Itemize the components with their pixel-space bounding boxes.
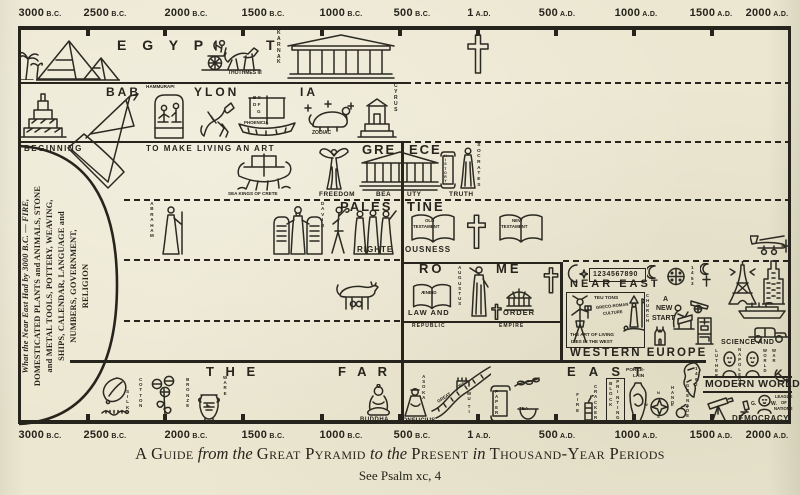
rome-cross-icon [543, 264, 559, 294]
vline-rome-right [560, 262, 563, 362]
rome-label-2: ME [496, 262, 522, 275]
far-label: F A R [338, 365, 391, 378]
new-testament-label-1: NEW [512, 219, 522, 223]
axis-tick [710, 30, 714, 36]
axis-label-1000-ad: 1000 A.D. [615, 7, 658, 19]
near-east-label: NEAR EAST [570, 279, 661, 290]
axis-label-3000-bc: 3000 B.C. [18, 429, 61, 441]
axis-label-500-bc: 500 B.C. [394, 7, 431, 19]
arc-text-line: What the Near East Had by 3000 B.C. — FI… [20, 150, 32, 422]
art-of-living-label-2: DIES IN THE WEST [571, 340, 613, 345]
order-label: ORDER [503, 309, 535, 317]
porcelain-label-2: LAIN [633, 375, 644, 380]
axis-tick [554, 414, 558, 420]
fire-label: FIRE [576, 392, 579, 413]
crescent-cross-icon [700, 263, 713, 287]
axis-tick [163, 30, 167, 36]
arc-text-line: and METAL TOOLS, POTTERY, WEAVING, [44, 150, 56, 422]
bronze-vessel-icon [196, 390, 222, 423]
silk-label: SILK [126, 389, 129, 410]
egypt-label-2: T [266, 38, 275, 52]
caption-segment: in [469, 444, 490, 463]
axis-label-2000-bc: 2000 B.C. [164, 7, 207, 19]
cotton-plant-icon [149, 375, 179, 422]
wolf-icon [334, 278, 380, 311]
steamship-icon [737, 302, 787, 320]
numerals-label: 1234567890 [593, 271, 638, 278]
new-testament-label-2: TESTAMENT [501, 225, 528, 229]
psalm-reference: See Psalm xc, 4 [0, 468, 800, 484]
telescope-icon [706, 397, 735, 422]
cathedral-icon [652, 326, 668, 347]
babylonia-label-2: YLON [194, 86, 239, 98]
arc-text-line: DOMESTICATED PLANTS and ANIMALS, STONE [32, 150, 44, 422]
buddha-icon [363, 384, 394, 417]
cannon-icon [689, 298, 712, 314]
sailing-ship-icon [56, 86, 144, 198]
sail-letters-1: B C [253, 96, 261, 101]
republic-label: REPUBLIC [412, 324, 446, 329]
axis-label-500-ad: 500 A.D. [539, 429, 575, 441]
beauty-label-2: UTY [407, 192, 422, 199]
chariot-icon [200, 38, 262, 71]
augustus-statue-icon [465, 265, 492, 318]
karnak-label: KARNAK [277, 31, 281, 66]
axis-label-1000-bc: 1000 B.C. [319, 429, 362, 441]
dash-bab-greece-right [405, 141, 789, 143]
axis-label-1-ad: 1 A.D. [467, 429, 491, 441]
axis-label-1000-bc: 1000 B.C. [319, 7, 362, 19]
new-start-label-1: A [663, 296, 668, 303]
greece-label-2: ECE [409, 143, 442, 156]
napoleon-portrait-icon [745, 350, 760, 377]
augustus-label: AUGUSTUS [458, 265, 461, 307]
bronze-label: BRONZE [186, 377, 189, 408]
teutons-label: TEU TONS [594, 297, 618, 302]
printing-press-icon [694, 315, 715, 346]
line-fareast-top [70, 360, 706, 363]
hammurapi-label: HAMMURAPI [146, 85, 175, 90]
axis-label-2000-bc: 2000 B.C. [164, 429, 207, 441]
righteousness-label-2: OUSNESS [405, 246, 451, 254]
cotton-label: COTTON [139, 377, 142, 408]
karnak-temple-icon [286, 33, 396, 81]
league-label-3: NATIONS [774, 407, 793, 411]
luther-label: LUTHER [715, 349, 718, 379]
david-label: DAVID [321, 201, 324, 228]
axis-label-1500-bc: 1500 B.C. [241, 7, 284, 19]
compass-w-label: W [644, 403, 648, 407]
egypt-label-1: E G Y P [117, 38, 209, 52]
axis-label-2000-ad: 2000 A.D. [746, 429, 789, 441]
socrates-label: SOCRATES [477, 143, 481, 188]
law-and-label: LAW AND [408, 309, 450, 317]
sea-kings-label: SEA KINGS OF CRETE [228, 192, 278, 197]
grenade-label: GRENADE [686, 384, 689, 419]
paper-label: PAPER [495, 389, 498, 415]
crete-ship-icon [236, 150, 294, 191]
crescent-icon [647, 265, 660, 279]
church-figure-icon [622, 295, 646, 333]
thothmes-label: THOTHMES III [228, 71, 262, 76]
paper-scroll-icon [488, 384, 512, 423]
axis-tick [632, 30, 636, 36]
axis-label-1-ad: 1 A.D. [467, 7, 491, 19]
church-label: CHURCH [646, 294, 649, 324]
axis-tick [320, 414, 324, 420]
caption-segment: Thousand-Year Periods [490, 444, 665, 463]
asoka-label: ASOKA [422, 374, 425, 400]
gw-label-1: G. [751, 402, 756, 407]
washington-portrait-icon [757, 394, 772, 414]
axis-label-2500-bc: 2500 B.C. [83, 7, 126, 19]
sail-letters-2: D F [253, 103, 260, 108]
compass-n-label: N [657, 391, 660, 395]
dash-rome-bottom-left [124, 320, 400, 322]
buddha-label: BUDDHA [360, 417, 389, 423]
modern-world-label: MODERN WORLD [705, 379, 800, 390]
greece-label-1: GRE [362, 143, 396, 156]
caption-segment: Present [411, 444, 468, 463]
caption-segment: to the [366, 444, 411, 463]
axis-label-2000-ad: 2000 A.D. [746, 7, 789, 19]
line-modern-bottom [703, 391, 792, 393]
caption-segment: A Guide [135, 444, 194, 463]
tea-label: TEA [519, 407, 528, 412]
axis-label-3000-bc: 3000 B.C. [18, 7, 61, 19]
line-egypt-bab [20, 82, 405, 84]
world-war-label-1: WORLD [763, 349, 767, 374]
league-label-1: LEAGUE [775, 395, 792, 399]
abraham-figure-icon [158, 204, 186, 256]
babylonia-label-3: IA [300, 86, 318, 98]
chart-caption: A Guide from the Great Pyramid to the Pr… [0, 444, 800, 464]
cyrus-label: CYRUS [394, 84, 398, 113]
old-testament-label-2: TESTAMENT [413, 225, 440, 229]
timeline-chart-page: 3000 B.C.2500 B.C.2000 B.C.1500 B.C.1000… [0, 0, 800, 495]
palestine-label-1: PALES [340, 200, 392, 213]
compass-e-label: E [671, 403, 674, 407]
america-map-icon [679, 362, 706, 399]
rome-label-1: RO [419, 262, 445, 275]
democracy-label: DEMOCRACY [732, 415, 789, 423]
aeneid-label: ÆNEID [421, 291, 437, 296]
western-europe-label: WESTERN EUROPE [570, 348, 707, 360]
moses-tablets-icon [272, 204, 324, 256]
axis-tick [241, 30, 245, 36]
the-label: T H E [206, 365, 259, 378]
axis-label-1000-ad: 1000 A.D. [615, 429, 658, 441]
cyrus-tomb-icon [357, 92, 397, 139]
horse-icon [198, 98, 236, 138]
sail-letters-3: G [257, 110, 261, 115]
axis-label-500-bc: 500 B.C. [394, 429, 431, 441]
science-and-label: SCIENCE AND [721, 339, 774, 346]
axis-tick [554, 30, 558, 36]
beauty-label-1: BEA [376, 192, 391, 199]
palestine-cross-icon [466, 210, 487, 250]
hammurapi-stele-icon [148, 92, 190, 140]
dash-pal-rome-left [124, 259, 400, 261]
luther-portrait-icon [722, 350, 737, 377]
great-wall-icon [431, 364, 491, 419]
babylonia-label-1: BAB [106, 86, 141, 98]
caption-segment: from the [194, 444, 257, 463]
history-scroll-icon [440, 150, 456, 190]
caption-segment: Great Pyramid [257, 444, 366, 463]
world-war-label-2: WAR [772, 349, 776, 364]
block-label: BLOCK [609, 381, 612, 407]
axis-label-1500-bc: 1500 B.C. [241, 429, 284, 441]
zodiac-icon [304, 99, 354, 132]
axis-tick [241, 414, 245, 420]
airplane-icon [750, 230, 794, 258]
phoenicia-ship-icon [236, 90, 298, 140]
axis-label-500-ad: 500 A.D. [539, 7, 575, 19]
tea-icon [512, 376, 542, 422]
axis-tick [398, 30, 402, 36]
truth-label: TRUTH [449, 192, 474, 199]
axis-label-2500-bc: 2500 B.C. [83, 429, 126, 441]
confucius-label: CONFUCIUS [398, 418, 435, 424]
zodiac-label: ZODIAC [312, 131, 331, 136]
firecracker-icon [583, 395, 594, 422]
printing-label: PRINTING [616, 379, 619, 421]
righteousness-label-1: RIGHTE [357, 246, 393, 254]
astrolabe-icon [666, 267, 686, 286]
pyramids-icon [36, 34, 120, 81]
freedom-label: FREEDOM [319, 192, 355, 199]
old-testament-label-1: OLD [425, 219, 434, 223]
victory-statue-icon [318, 145, 350, 191]
ware-label: WARE [223, 375, 227, 396]
rome-cross-small-icon [491, 302, 502, 320]
eiffel-tower-icon [726, 261, 759, 306]
league-label-2: OF [781, 401, 787, 405]
beginning-label: BEGINNING [24, 145, 83, 153]
cross-1ad-icon [466, 29, 490, 75]
truth-statue-icon [457, 146, 479, 190]
art-of-living-label-1: THE ART OF LIVING [570, 333, 614, 338]
history-label: HISTORY [444, 154, 447, 184]
axis-label-1500-ad: 1500 A.D. [690, 429, 733, 441]
skyscraper-icon [762, 259, 785, 306]
abraham-label: ABRAHAM [150, 201, 154, 239]
dash-greece-pal-right [405, 199, 789, 201]
cracker-label: CRACKER [594, 384, 597, 420]
axis-label-1500-ad: 1500 A.D. [690, 7, 733, 19]
wuti-label: WU TI [467, 391, 471, 414]
year-1453-label: 1453 [691, 265, 694, 287]
compass-s-label: S [657, 415, 660, 419]
dash-egypt-bab-right [405, 82, 789, 84]
year-1492-label: 1492 [695, 366, 698, 388]
empire-label: EMPIRE [499, 324, 524, 329]
phoenicia-label: PHOENICIA [244, 121, 268, 125]
